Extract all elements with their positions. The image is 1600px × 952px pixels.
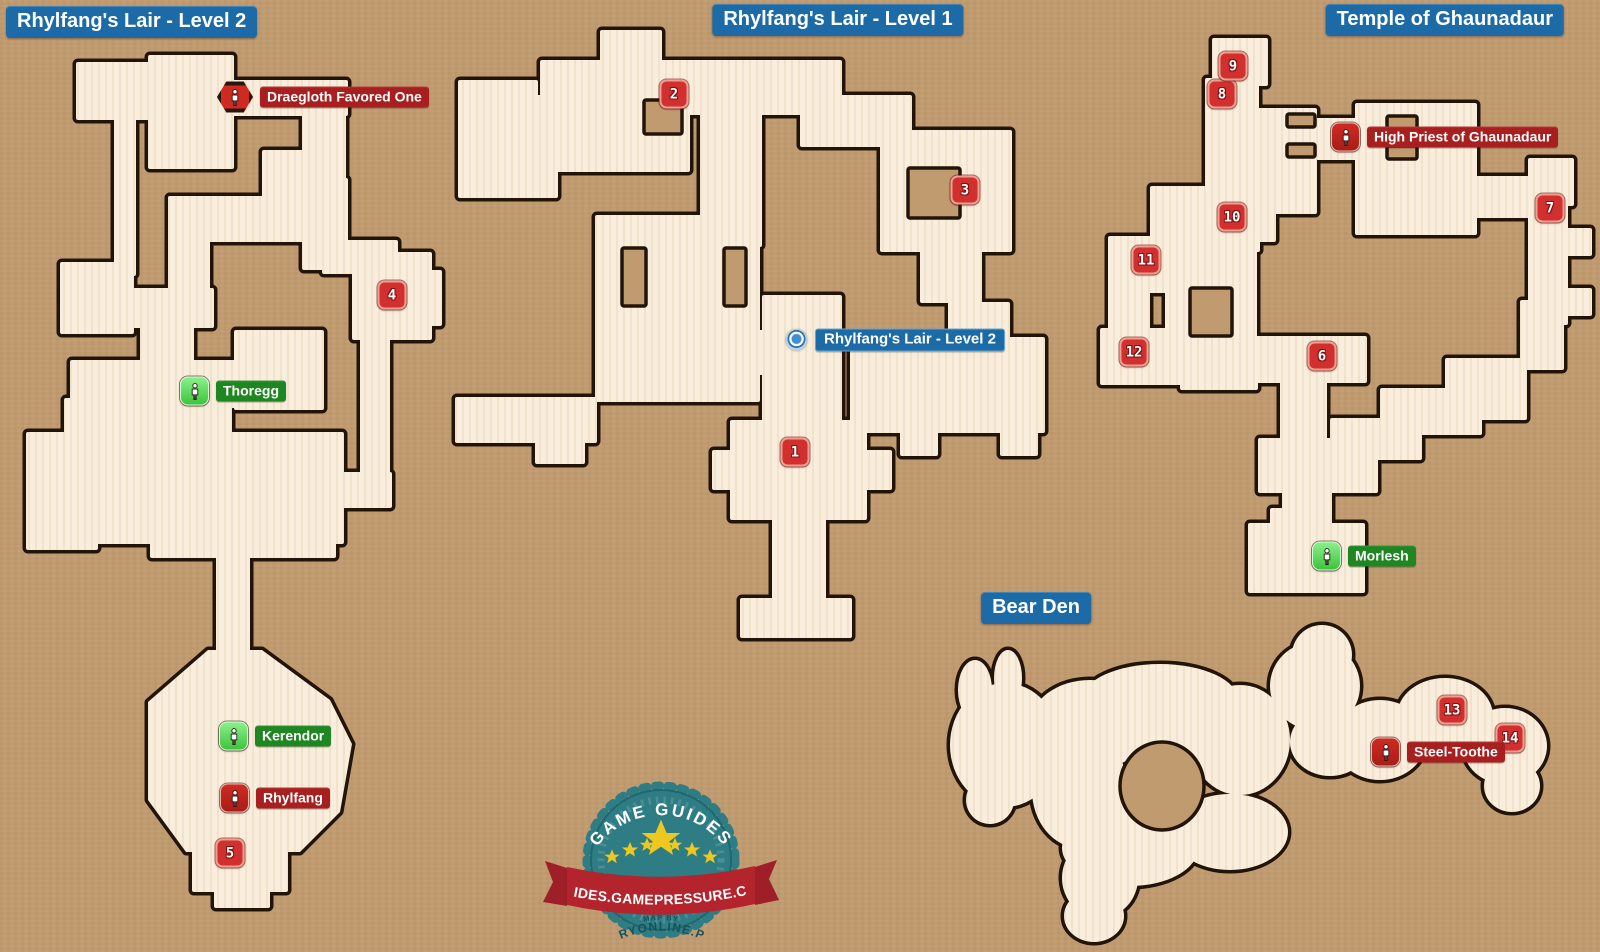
number-marker-label: 8: [1218, 86, 1226, 102]
person-icon: [1312, 542, 1341, 571]
number-marker-label: 12: [1126, 344, 1143, 360]
number-marker-label: 3: [961, 182, 969, 198]
map-title: Temple of Ghaunadaur: [1326, 4, 1564, 36]
npc-marker: Rhylfang: [220, 784, 330, 813]
number-marker: 6: [1308, 342, 1337, 371]
number-marker: 8: [1208, 80, 1237, 109]
number-marker: 9: [1219, 52, 1248, 81]
number-marker: 1: [781, 438, 810, 467]
npc-marker: Kerendor: [219, 722, 331, 751]
npc-marker-label: High Priest of Ghaunadaur: [1367, 127, 1558, 148]
number-marker-label: 9: [1229, 58, 1237, 74]
person-icon: [180, 377, 209, 406]
number-marker-label: 2: [670, 86, 678, 102]
exit-dot-icon: [786, 330, 807, 351]
map-title: Rhylfang's Lair - Level 1: [712, 4, 963, 36]
npc-marker: Draegloth Favored One: [217, 82, 429, 113]
gamepressure-logo: GAME GUIDES: [531, 775, 791, 952]
number-marker-label: 5: [226, 845, 234, 861]
level-exit-marker: Rhylfang's Lair - Level 2: [786, 329, 1005, 352]
person-icon: [217, 82, 253, 113]
number-marker-label: 6: [1318, 348, 1326, 364]
npc-marker-label: Morlesh: [1348, 546, 1416, 567]
person-icon: [219, 722, 248, 751]
number-marker: 3: [951, 176, 980, 205]
number-marker-label: 1: [791, 444, 799, 460]
number-marker-label: 7: [1546, 200, 1554, 216]
number-marker-label: 4: [388, 287, 396, 303]
number-marker: 11: [1132, 246, 1161, 275]
person-icon: [1331, 123, 1360, 152]
exit-marker-label: Rhylfang's Lair - Level 2: [815, 329, 1005, 352]
npc-marker: Thoregg: [180, 377, 286, 406]
npc-marker: Steel-Toothe: [1371, 738, 1505, 767]
number-marker: 7: [1536, 194, 1565, 223]
npc-marker-label: Kerendor: [255, 726, 331, 747]
npc-marker: High Priest of Ghaunadaur: [1331, 123, 1558, 152]
number-marker: 10: [1218, 203, 1247, 232]
map-title: Bear Den: [981, 592, 1091, 624]
number-marker: 2: [660, 80, 689, 109]
markers-overlay: Rhylfang's Lair - Level 2Rhylfang's Lair…: [0, 0, 1600, 952]
npc-marker: Morlesh: [1312, 542, 1416, 571]
person-icon: [1371, 738, 1400, 767]
npc-marker-label: Rhylfang: [256, 788, 330, 809]
person-icon: [220, 784, 249, 813]
number-marker: 13: [1438, 696, 1467, 725]
map-title: Rhylfang's Lair - Level 2: [6, 6, 257, 38]
number-marker: 4: [378, 281, 407, 310]
npc-marker-label: Draegloth Favored One: [260, 87, 429, 108]
npc-marker-label: Thoregg: [216, 381, 286, 402]
logo-badge: GAME GUIDES: [531, 775, 779, 943]
number-marker-label: 10: [1224, 209, 1241, 225]
number-marker: 5: [216, 839, 245, 868]
guide-map-canvas: Rhylfang's Lair - Level 2Rhylfang's Lair…: [0, 0, 1600, 952]
number-marker: 12: [1120, 338, 1149, 367]
number-marker-label: 11: [1138, 252, 1155, 268]
npc-marker-label: Steel-Toothe: [1407, 742, 1505, 763]
number-marker-label: 13: [1444, 702, 1461, 718]
